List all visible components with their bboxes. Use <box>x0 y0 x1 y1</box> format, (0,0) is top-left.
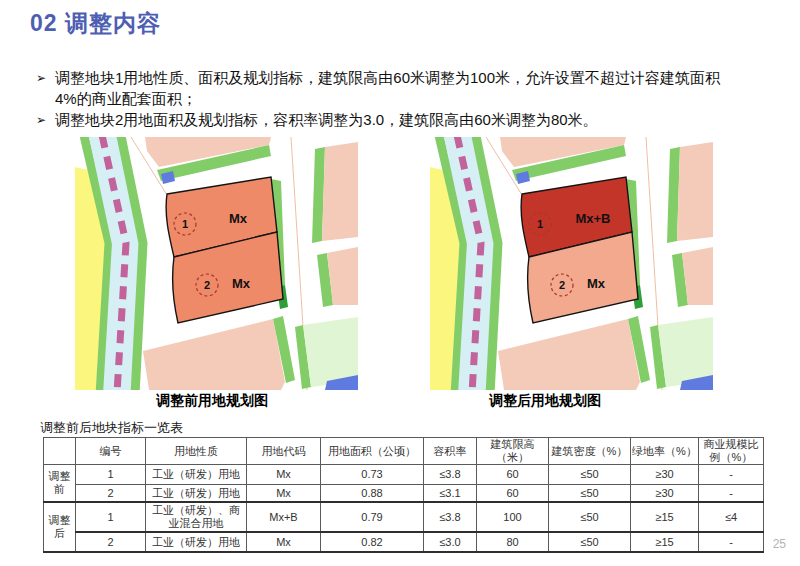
cell: ≤3.0 <box>424 532 477 552</box>
bullet-text: 调整地块1用地性质、面积及规划指标，建筑限高由60米调整为100米，允许设置不超… <box>55 67 778 109</box>
table-row: 2 工业（研发）用地 Mx 0.82 ≤3.0 80 ≤50 ≥15 - <box>44 532 764 552</box>
bullet-line: 4%的商业配套面积； <box>55 90 197 107</box>
cell: ≥15 <box>631 532 699 552</box>
col-header-green-ratio: 绿地率（%） <box>631 438 699 465</box>
cell: 2 <box>76 485 146 503</box>
cell: ≥30 <box>631 485 699 503</box>
plot-indicator-table: 编号 用地性质 用地代码 用地面积（公顷） 容积率 建筑限高（米） 建筑密度（%… <box>43 437 764 553</box>
cell: 0.88 <box>321 485 424 503</box>
parcel-2-number: 2 <box>204 279 210 291</box>
parcel-1-number: 1 <box>537 218 543 230</box>
table-row: 调整前 1 工业（研发）用地 Mx 0.73 ≤3.8 60 ≤50 ≥30 - <box>44 465 764 485</box>
cell: Mx <box>247 485 321 503</box>
cell: Mx+B <box>247 502 321 532</box>
col-header-land-use: 用地性质 <box>146 438 247 465</box>
cell: ≤50 <box>549 502 631 532</box>
page-number: 25 <box>773 537 786 551</box>
page-title: 02 调整内容 <box>30 8 161 39</box>
cell: 0.79 <box>321 502 424 532</box>
cell: 80 <box>477 532 549 552</box>
group-label-before: 调整前 <box>44 465 76 503</box>
map-caption-after: 调整后用地规划图 <box>425 392 665 410</box>
parcel-1-label: Mx <box>229 211 248 226</box>
cell: - <box>699 485 764 503</box>
cell: - <box>699 465 764 485</box>
parcel-east-upper <box>677 142 713 241</box>
cell: 工业（研发）、商业混合用地 <box>146 502 247 532</box>
cell: Mx <box>247 532 321 552</box>
cell: 工业（研发）用地 <box>146 532 247 552</box>
parcel-2-label: Mx <box>232 276 251 291</box>
table-row: 调整后 1 工业（研发）、商业混合用地 Mx+B 0.79 ≤3.8 100 ≤… <box>44 502 764 532</box>
bullet-text: 调整地块2用地面积及规划指标，容积率调整为3.0，建筑限高由60米调整为80米。 <box>55 109 778 131</box>
table-row: 2 工业（研发）用地 Mx 0.88 ≤3.1 60 ≤50 ≥30 - <box>44 485 764 503</box>
land-use-map-after: 1Mx+B2Mx <box>430 137 713 390</box>
cell: ≤3.8 <box>424 502 477 532</box>
group-label-after: 调整后 <box>44 502 76 552</box>
parcel-southeast <box>658 317 713 387</box>
bullet-arrow-icon: ➢ <box>36 67 55 109</box>
col-header-commercial-ratio: 商业规模比例（%） <box>699 438 764 465</box>
table-title: 调整前后地块指标一览表 <box>40 419 183 437</box>
land-use-map-before-svg: 1Mx2Mx <box>75 137 358 390</box>
cell: ≤50 <box>549 532 631 552</box>
cell: ≤50 <box>549 465 631 485</box>
cell: 0.82 <box>321 532 424 552</box>
bullet-item-1: ➢ 调整地块1用地性质、面积及规划指标，建筑限高由60米调整为100米，允许设置… <box>36 67 778 109</box>
table-header-row: 编号 用地性质 用地代码 用地面积（公顷） 容积率 建筑限高（米） 建筑密度（%… <box>44 438 764 465</box>
parcel-1-number: 1 <box>182 218 188 230</box>
bullet-line: 调整地块2用地面积及规划指标，容积率调整为3.0，建筑限高由60米调整为80米。 <box>55 111 598 128</box>
col-header-land-area: 用地面积（公顷） <box>321 438 424 465</box>
parcel-2-label: Mx <box>587 276 606 291</box>
cell: 工业（研发）用地 <box>146 465 247 485</box>
cell: ≥15 <box>631 502 699 532</box>
cell: ≤4 <box>699 502 764 532</box>
land-use-map-before: 1Mx2Mx <box>75 137 358 390</box>
cell: ≥30 <box>631 465 699 485</box>
bullet-arrow-icon: ➢ <box>36 109 55 131</box>
cell: ≤3.8 <box>424 465 477 485</box>
col-header-height-limit: 建筑限高（米） <box>477 438 549 465</box>
col-header-far: 容积率 <box>424 438 477 465</box>
cell: Mx <box>247 465 321 485</box>
cell: 0.73 <box>321 465 424 485</box>
cell: 100 <box>477 502 549 532</box>
cell: 60 <box>477 485 549 503</box>
land-use-map-after-svg: 1Mx+B2Mx <box>430 137 713 390</box>
slide: 02 调整内容 ➢ 调整地块1用地性质、面积及规划指标，建筑限高由60米调整为1… <box>0 0 800 566</box>
cell: 60 <box>477 465 549 485</box>
col-header-land-code: 用地代码 <box>247 438 321 465</box>
parcel-2-number: 2 <box>559 279 565 291</box>
cell: ≤3.1 <box>424 485 477 503</box>
col-header-number: 编号 <box>76 438 146 465</box>
cell: 1 <box>76 465 146 485</box>
cell: ≤50 <box>549 485 631 503</box>
parcel-1-label: Mx+B <box>575 211 610 226</box>
col-header-group <box>44 438 76 465</box>
cell: - <box>699 532 764 552</box>
bullet-line: 调整地块1用地性质、面积及规划指标，建筑限高由60米调整为100米，允许设置不超… <box>55 69 720 86</box>
cell: 1 <box>76 502 146 532</box>
map-caption-before: 调整前用地规划图 <box>92 392 332 410</box>
parcel-east-upper <box>322 142 358 241</box>
parcel-southeast <box>303 317 358 387</box>
bullet-list: ➢ 调整地块1用地性质、面积及规划指标，建筑限高由60米调整为100米，允许设置… <box>36 67 778 131</box>
col-header-density: 建筑密度（%） <box>549 438 631 465</box>
bullet-item-2: ➢ 调整地块2用地面积及规划指标，容积率调整为3.0，建筑限高由60米调整为80… <box>36 109 778 131</box>
cell: 工业（研发）用地 <box>146 485 247 503</box>
cell: 2 <box>76 532 146 552</box>
